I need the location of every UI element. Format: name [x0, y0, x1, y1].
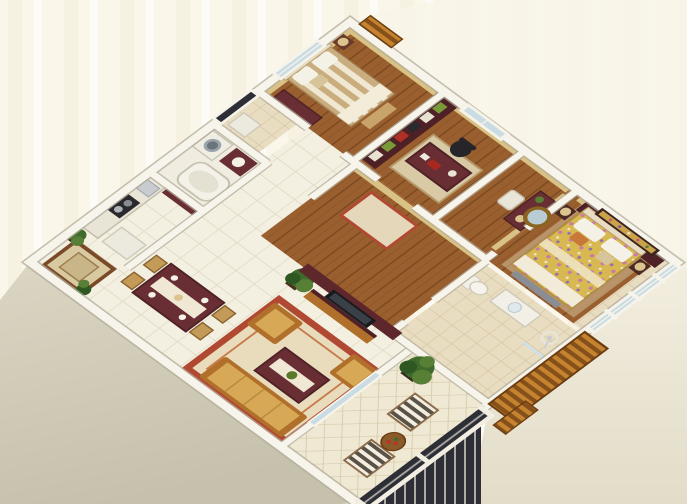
floor-plan-render	[0, 0, 687, 504]
scene	[0, 0, 687, 504]
